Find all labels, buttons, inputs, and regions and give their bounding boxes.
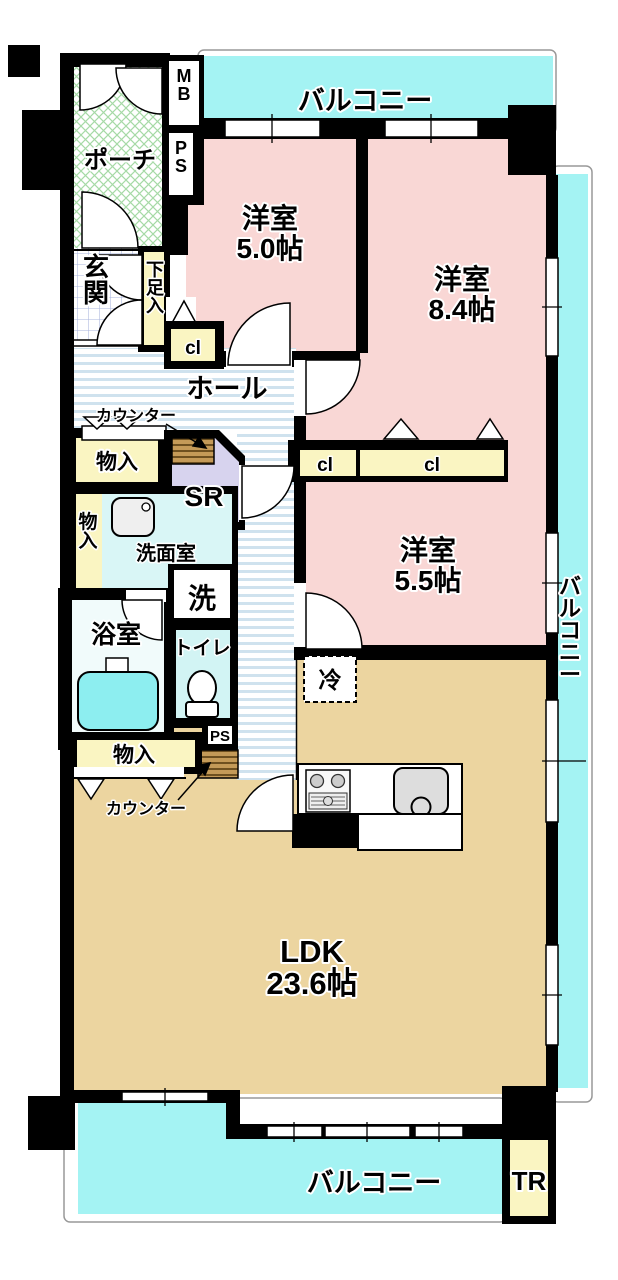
label-closet-c: cl bbox=[424, 455, 440, 476]
storage-bottom-strip bbox=[74, 767, 184, 778]
floor-plan-page: バルコニー バルコニー バルコニー MB PS ポーチ 洋室 5.0帖 洋室 8… bbox=[0, 0, 618, 1280]
label-storage-bottom: 物入 bbox=[113, 743, 155, 767]
label-sr: SR bbox=[185, 481, 224, 512]
label-ldk-size: 23.6帖 bbox=[266, 966, 357, 1001]
toilet-bowl bbox=[188, 671, 216, 705]
label-refrigerator: 冷 bbox=[319, 667, 342, 693]
label-bedroom-c-name: 洋室 bbox=[400, 534, 456, 566]
sr-counter bbox=[172, 438, 214, 464]
label-shoe-cabinet: 下足入 bbox=[146, 260, 164, 316]
washbasin-faucet bbox=[142, 503, 150, 511]
label-hall: ホール bbox=[187, 374, 268, 404]
label-pipe-space-top: PS bbox=[175, 138, 187, 176]
bathtub bbox=[78, 672, 158, 730]
label-washer: 洗 bbox=[188, 583, 216, 614]
label-trunk-room: TR bbox=[512, 1166, 547, 1196]
ldk-area-right bbox=[296, 652, 550, 1094]
label-balcony-right: バルコニー bbox=[559, 574, 581, 687]
label-closet-a: cl bbox=[185, 338, 201, 359]
stove-burner bbox=[311, 775, 324, 788]
stove-burner bbox=[332, 775, 345, 788]
label-washroom: 洗面室 bbox=[136, 541, 196, 565]
label-storage-top: 物入 bbox=[96, 450, 138, 474]
label-toilet: トイレ bbox=[173, 638, 230, 659]
label-balcony-bottom: バルコニー bbox=[307, 1168, 441, 1198]
label-bedroom-b-size: 8.4帖 bbox=[429, 294, 496, 325]
label-pipe-space-bottom: PS bbox=[210, 728, 230, 745]
label-closet-b: cl bbox=[317, 455, 333, 476]
label-balcony-top: バルコニー bbox=[298, 86, 432, 116]
label-storage-left: 物入 bbox=[78, 510, 97, 552]
kitchen-island bbox=[358, 814, 462, 850]
label-bedroom-b-name: 洋室 bbox=[434, 263, 490, 295]
label-bedroom-c-size: 5.5帖 bbox=[395, 565, 462, 596]
counter-top-shelf bbox=[82, 426, 166, 440]
label-bedroom-a-name: 洋室 bbox=[242, 202, 298, 234]
floor-plan-svg: バルコニー バルコニー バルコニー MB PS ポーチ 洋室 5.0帖 洋室 8… bbox=[0, 0, 618, 1280]
label-meter-box: MB bbox=[177, 66, 192, 104]
toilet-tank bbox=[186, 702, 218, 717]
stove-knob bbox=[324, 797, 333, 806]
label-ldk-name: LDK bbox=[280, 934, 344, 969]
label-counter-top: カウンター bbox=[96, 407, 176, 425]
label-bathroom: 浴室 bbox=[91, 620, 141, 649]
label-porch: ポーチ bbox=[84, 146, 156, 174]
label-entrance: 玄関 bbox=[83, 252, 109, 308]
label-bedroom-a-size: 5.0帖 bbox=[237, 233, 304, 264]
kitchen-wall-block bbox=[292, 814, 358, 848]
label-counter-bottom: カウンター bbox=[106, 800, 186, 818]
